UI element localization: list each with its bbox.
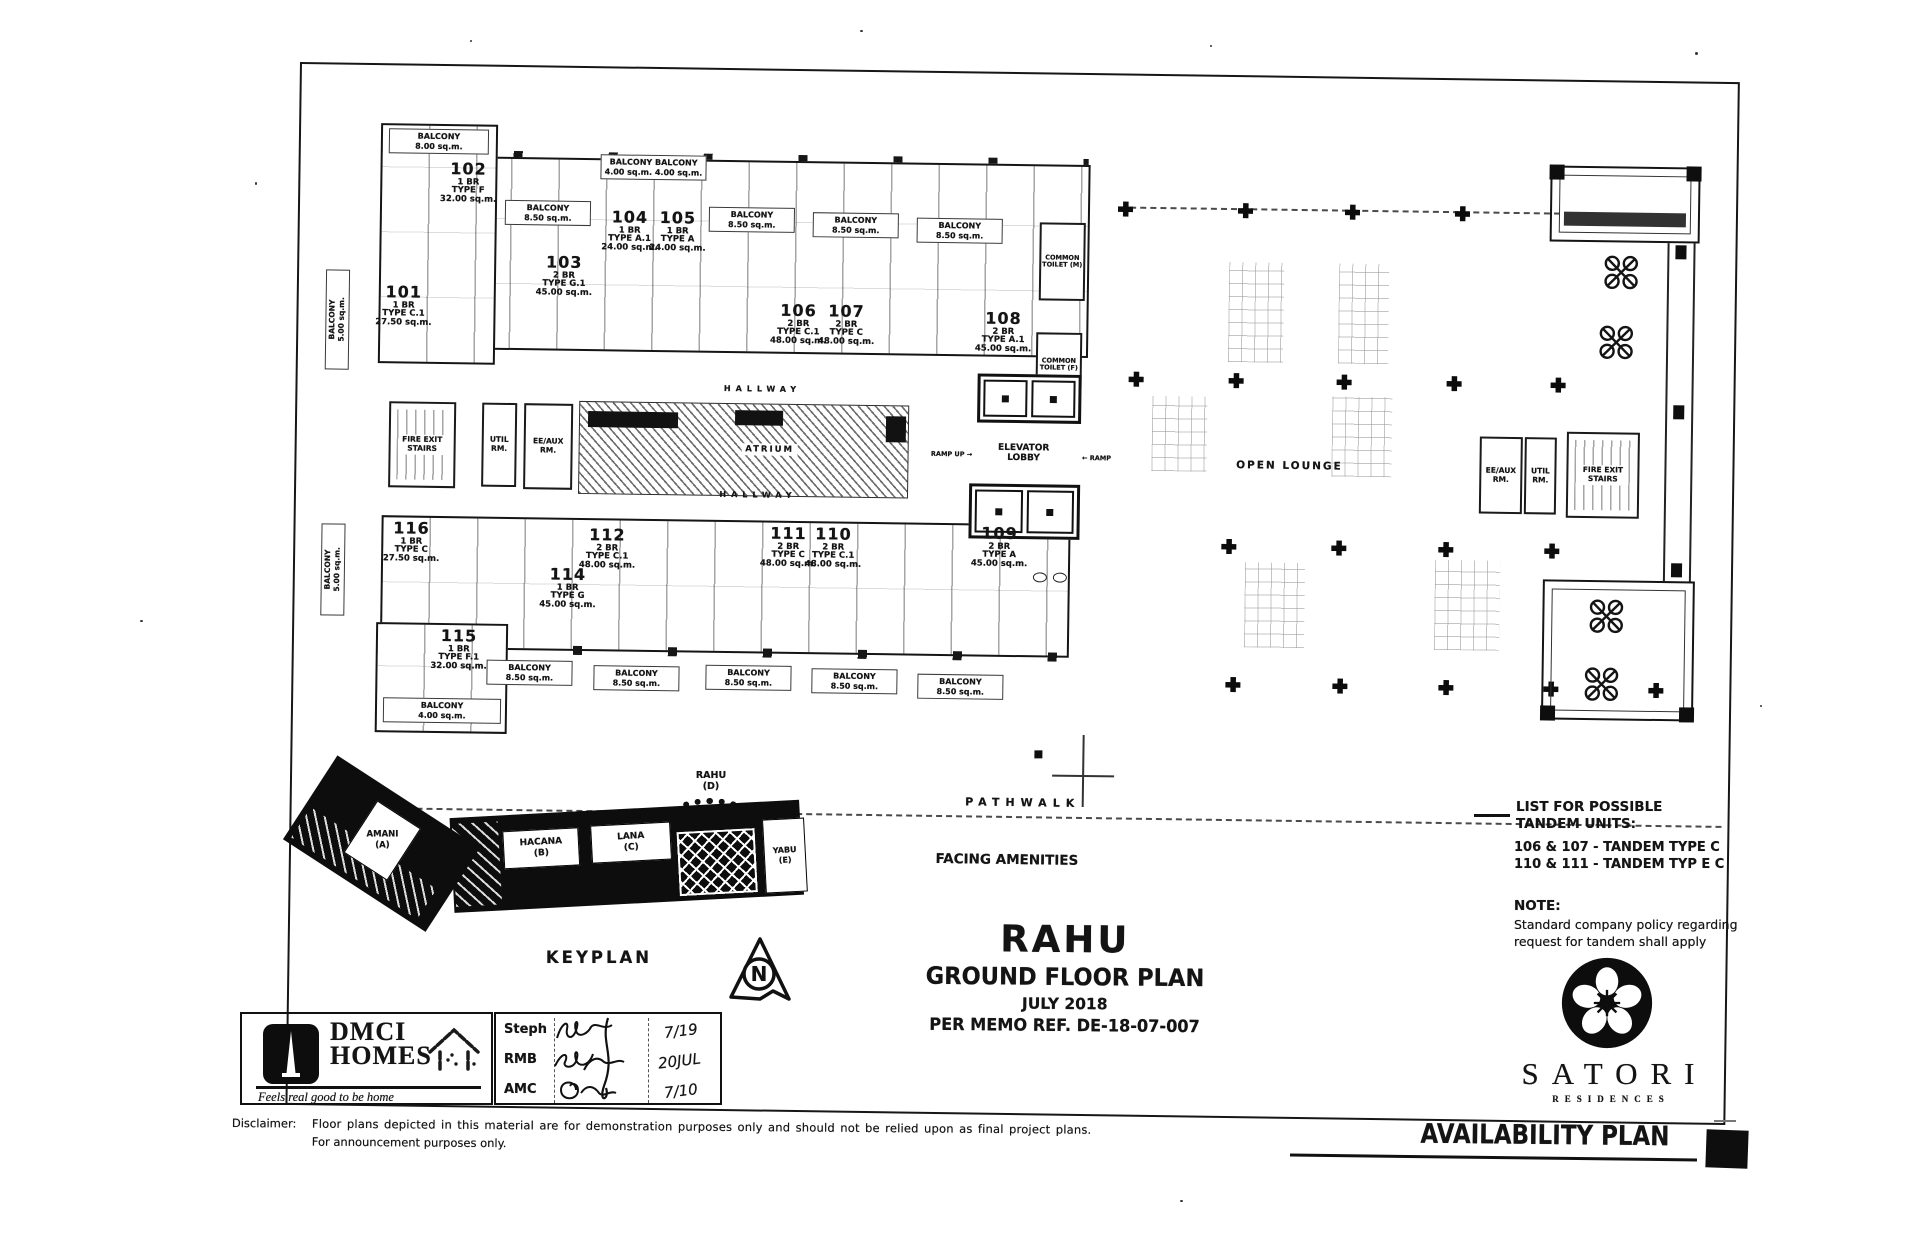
dmci-wordmark: DMCIHOMES xyxy=(330,1020,432,1068)
ee-aux-room-right: EE/AUX RM. xyxy=(1479,437,1523,515)
balcony-bottom-4: BALCONY8.50 sq.m. xyxy=(811,668,897,694)
signature-long-stroke xyxy=(592,1016,632,1106)
north-arrow-icon: N xyxy=(722,936,798,1006)
common-toilet-m-room: COMMON TOILET (M) xyxy=(1039,222,1086,301)
elevator-lobby-label: ELEVATOR LOBBY xyxy=(992,443,1054,465)
column-marker xyxy=(1331,540,1346,555)
balcony-top-4: BALCONY8.50 sq.m. xyxy=(917,218,1003,244)
plant-icon xyxy=(1603,254,1639,290)
column-marker xyxy=(1544,543,1559,558)
project-title: RAHU xyxy=(915,917,1215,963)
right-colonnade xyxy=(1663,243,1696,581)
satori-wordmark: SATORI xyxy=(1498,1056,1718,1092)
balcony-bottom-2: BALCONY8.50 sq.m. xyxy=(593,665,679,691)
atrium-planter xyxy=(886,416,906,442)
column-marker xyxy=(1345,205,1360,220)
signoff-name-1: Steph xyxy=(504,1022,547,1037)
scan-speckle xyxy=(1695,52,1698,55)
column-marker xyxy=(1221,539,1236,554)
column-marker xyxy=(1447,376,1462,391)
unit-label-115: 1151 BR TYPE F.132.00 sq.m. xyxy=(417,628,502,672)
scan-artifact-blob xyxy=(1705,1129,1748,1168)
signoff-name-3: AMC xyxy=(504,1082,537,1097)
disclaimer-line-1: Floor plans depicted in this material ar… xyxy=(312,1117,1092,1137)
plant-icon xyxy=(1583,666,1619,702)
keyplan-building-bar: HACANA(B) LANA(C) YABU(E) xyxy=(450,800,804,913)
util-room-left: UTIL RM. xyxy=(481,403,517,487)
unit-label-108: 1082 BR TYPE A.145.00 sq.m. xyxy=(961,310,1046,354)
scanned-availability-plan-sheet: BALCONY8.00 sq.m. BALCONY BALCONY4.00 sq… xyxy=(0,0,1920,1255)
plan-title: GROUND FLOOR PLAN xyxy=(924,962,1206,992)
balcony-104-105: BALCONY BALCONY4.00 sq.m. 4.00 sq.m. xyxy=(600,154,706,181)
column-marker xyxy=(1332,678,1347,693)
title-block: RAHU GROUND FLOOR PLAN JULY 2018 PER MEM… xyxy=(914,917,1215,1038)
plant-icon xyxy=(1598,324,1634,360)
column-marker xyxy=(1455,206,1470,221)
scan-speckle xyxy=(1210,45,1212,47)
terrace-top-right xyxy=(1550,165,1701,243)
lounge-furniture xyxy=(1434,560,1500,651)
ramp-up-label: RAMP UP → xyxy=(919,450,985,459)
elevator-car xyxy=(983,380,1028,418)
colonnade-column xyxy=(1673,405,1684,419)
note-line-1: Standard company policy regarding xyxy=(1514,917,1738,932)
keyplan-hacana: HACANA(B) xyxy=(502,827,580,869)
atrium-planter xyxy=(588,411,678,428)
scan-speckle xyxy=(140,620,143,622)
keyplan-label: KEYPLAN xyxy=(537,948,661,967)
unit-label-111: 1112 BR TYPE C48.00 sq.m. xyxy=(758,525,819,569)
unit-label-105: 1051 BR TYPE A24.00 sq.m. xyxy=(647,210,708,254)
column-marker xyxy=(1118,201,1133,216)
door-swing-mark xyxy=(1053,573,1067,583)
corner-column xyxy=(1686,166,1701,181)
disclaimer-line-2: For announcement purposes only. xyxy=(312,1135,507,1151)
disclaimer-label: Disclaimer: xyxy=(232,1116,297,1131)
column-marker xyxy=(1438,542,1453,557)
tandem-item-1: 106 & 107 - TANDEM TYPE C xyxy=(1514,840,1720,855)
signoff-date-1: 7/19 xyxy=(663,1020,699,1042)
scan-speckle xyxy=(1760,705,1762,707)
tandem-lead-line xyxy=(1474,814,1510,817)
balcony-bottom-5: BALCONY8.50 sq.m. xyxy=(917,674,1003,700)
unit-label-109: 1092 BR TYPE A45.00 sq.m. xyxy=(957,525,1042,569)
corner-column xyxy=(1549,164,1564,179)
pathwalk-label: PATHWALK xyxy=(958,795,1088,810)
unit-label-101: 1011 BR TYPE C.127.50 sq.m. xyxy=(361,284,446,328)
colonnade-column xyxy=(1671,563,1682,577)
tandem-heading-2: TANDEM UNITS: xyxy=(1516,816,1636,832)
lounge-furniture xyxy=(1228,262,1284,363)
elevator-bank-upper xyxy=(977,373,1082,423)
unit-label-116: 1161 BR TYPE C27.50 sq.m. xyxy=(369,520,454,564)
door-swing-mark xyxy=(1033,572,1047,582)
elevator-car xyxy=(1031,380,1076,418)
dmci-house-sketch-icon xyxy=(424,1020,484,1076)
hallway-top-label: HALLWAY xyxy=(697,384,827,395)
column-marker xyxy=(1438,680,1453,695)
scan-artifact-mark xyxy=(1714,1120,1736,1122)
survey-point xyxy=(1034,750,1042,758)
ramp-arrow-icon: ← xyxy=(1082,454,1088,462)
column-marker xyxy=(1225,677,1240,692)
balcony-102: BALCONY8.00 sq.m. xyxy=(389,128,489,155)
note-line-2: request for tandem shall apply xyxy=(1514,934,1706,949)
colonnade-column xyxy=(1675,245,1686,259)
terrace-bench xyxy=(1564,212,1686,228)
keyplan-rahu-label: RAHU(D) xyxy=(676,770,746,793)
column-gridline xyxy=(1120,206,1560,214)
plan-date: JULY 2018 xyxy=(915,994,1215,1015)
balcony-top-3: BALCONY8.50 sq.m. xyxy=(813,212,899,238)
util-room-right: UTIL RM. xyxy=(1524,437,1557,514)
satori-flower-logo xyxy=(1560,956,1654,1050)
column-marker xyxy=(1229,373,1244,388)
facing-amenities-label: FACING AMENITIES xyxy=(931,851,1083,869)
keyplan-rahu-building xyxy=(677,828,758,896)
tandem-item-2: 110 & 111 - TANDEM TYP E C xyxy=(1514,857,1724,872)
signoff-date-2: 20JUL xyxy=(657,1049,702,1072)
column-marker xyxy=(1129,372,1144,387)
balcony-116-side: BALCONY5.00 sq.m. xyxy=(320,523,345,615)
hallway-bottom-label: HALLWAY xyxy=(693,490,823,501)
lounge-furniture xyxy=(1244,562,1305,648)
fire-exit-stairs-left-room: FIRE EXIT STAIRS xyxy=(388,401,456,488)
atrium-label: ATRIUM xyxy=(730,444,810,455)
availability-plan-title: AVAILABILITY PLAN xyxy=(1417,1119,1672,1153)
column-marker xyxy=(1551,377,1566,392)
svg-text:N: N xyxy=(751,962,768,986)
keyplan-yabu: YABU(E) xyxy=(762,818,808,894)
scan-speckle xyxy=(1180,1200,1183,1202)
satori-sub-wordmark: RESIDENCES xyxy=(1518,1094,1698,1104)
signoff-box: Steph RMB AMC 7/19 20JUL 7/10 xyxy=(494,1012,722,1105)
column-marker xyxy=(1337,375,1352,390)
memo-ref: PER MEMO REF. DE-18-07-007 xyxy=(922,1015,1207,1037)
dmci-monument-icon xyxy=(262,1023,320,1085)
tandem-heading-1: LIST FOR POSSIBLE xyxy=(1516,799,1662,815)
note-label: NOTE: xyxy=(1514,898,1561,914)
signoff-divider xyxy=(648,1018,649,1103)
keyplan-lana: LANA(C) xyxy=(590,822,672,864)
scan-speckle xyxy=(255,182,257,185)
dmci-rule xyxy=(256,1086,481,1089)
balcony-bottom-3: BALCONY8.50 sq.m. xyxy=(705,665,791,691)
lounge-furniture xyxy=(1338,264,1389,365)
open-lounge-label: OPEN LOUNGE xyxy=(1234,459,1344,473)
dmci-tagline: Feels real good to be home xyxy=(258,1090,394,1105)
atrium-hatched-area: ATRIUM xyxy=(578,401,909,499)
scan-speckle xyxy=(470,40,472,42)
dmci-logo-box: DMCIHOMES Feels real good to be home xyxy=(240,1012,493,1105)
corner-column xyxy=(1679,707,1694,722)
availability-underline xyxy=(1290,1154,1697,1162)
unit-label-102: 1021 BR TYPE F32.00 sq.m. xyxy=(426,161,511,205)
signoff-date-3: 7/10 xyxy=(663,1080,699,1102)
atrium-planter xyxy=(735,410,783,426)
scan-speckle xyxy=(860,30,863,32)
unit-label-103: 1032 BR TYPE G.145.00 sq.m. xyxy=(522,254,607,298)
signoff-name-2: RMB xyxy=(504,1052,537,1067)
corner-column xyxy=(1540,705,1555,720)
balcony-top-2: BALCONY8.50 sq.m. xyxy=(709,207,795,233)
ee-aux-room-left: EE/AUX RM. xyxy=(523,403,573,490)
ramp-label: ← RAMP xyxy=(1068,454,1124,463)
unit-label-107: 1072 BR TYPE C48.00 sq.m. xyxy=(816,303,877,347)
balcony-101-side: BALCONY5.00 sq.m. xyxy=(325,269,350,369)
balcony-top-1: BALCONY8.50 sq.m. xyxy=(505,200,591,226)
plant-icon xyxy=(1588,598,1624,634)
balcony-115: BALCONY4.00 sq.m. xyxy=(383,697,501,724)
lounge-furniture xyxy=(1151,396,1207,472)
ramp-up-arrow-icon: → xyxy=(967,450,973,458)
fire-exit-stairs-right-room: FIRE EXIT STAIRS xyxy=(1566,432,1640,519)
unit-label-114: 1141 BR TYPE G45.00 sq.m. xyxy=(525,566,610,610)
column-marker xyxy=(1238,203,1253,218)
